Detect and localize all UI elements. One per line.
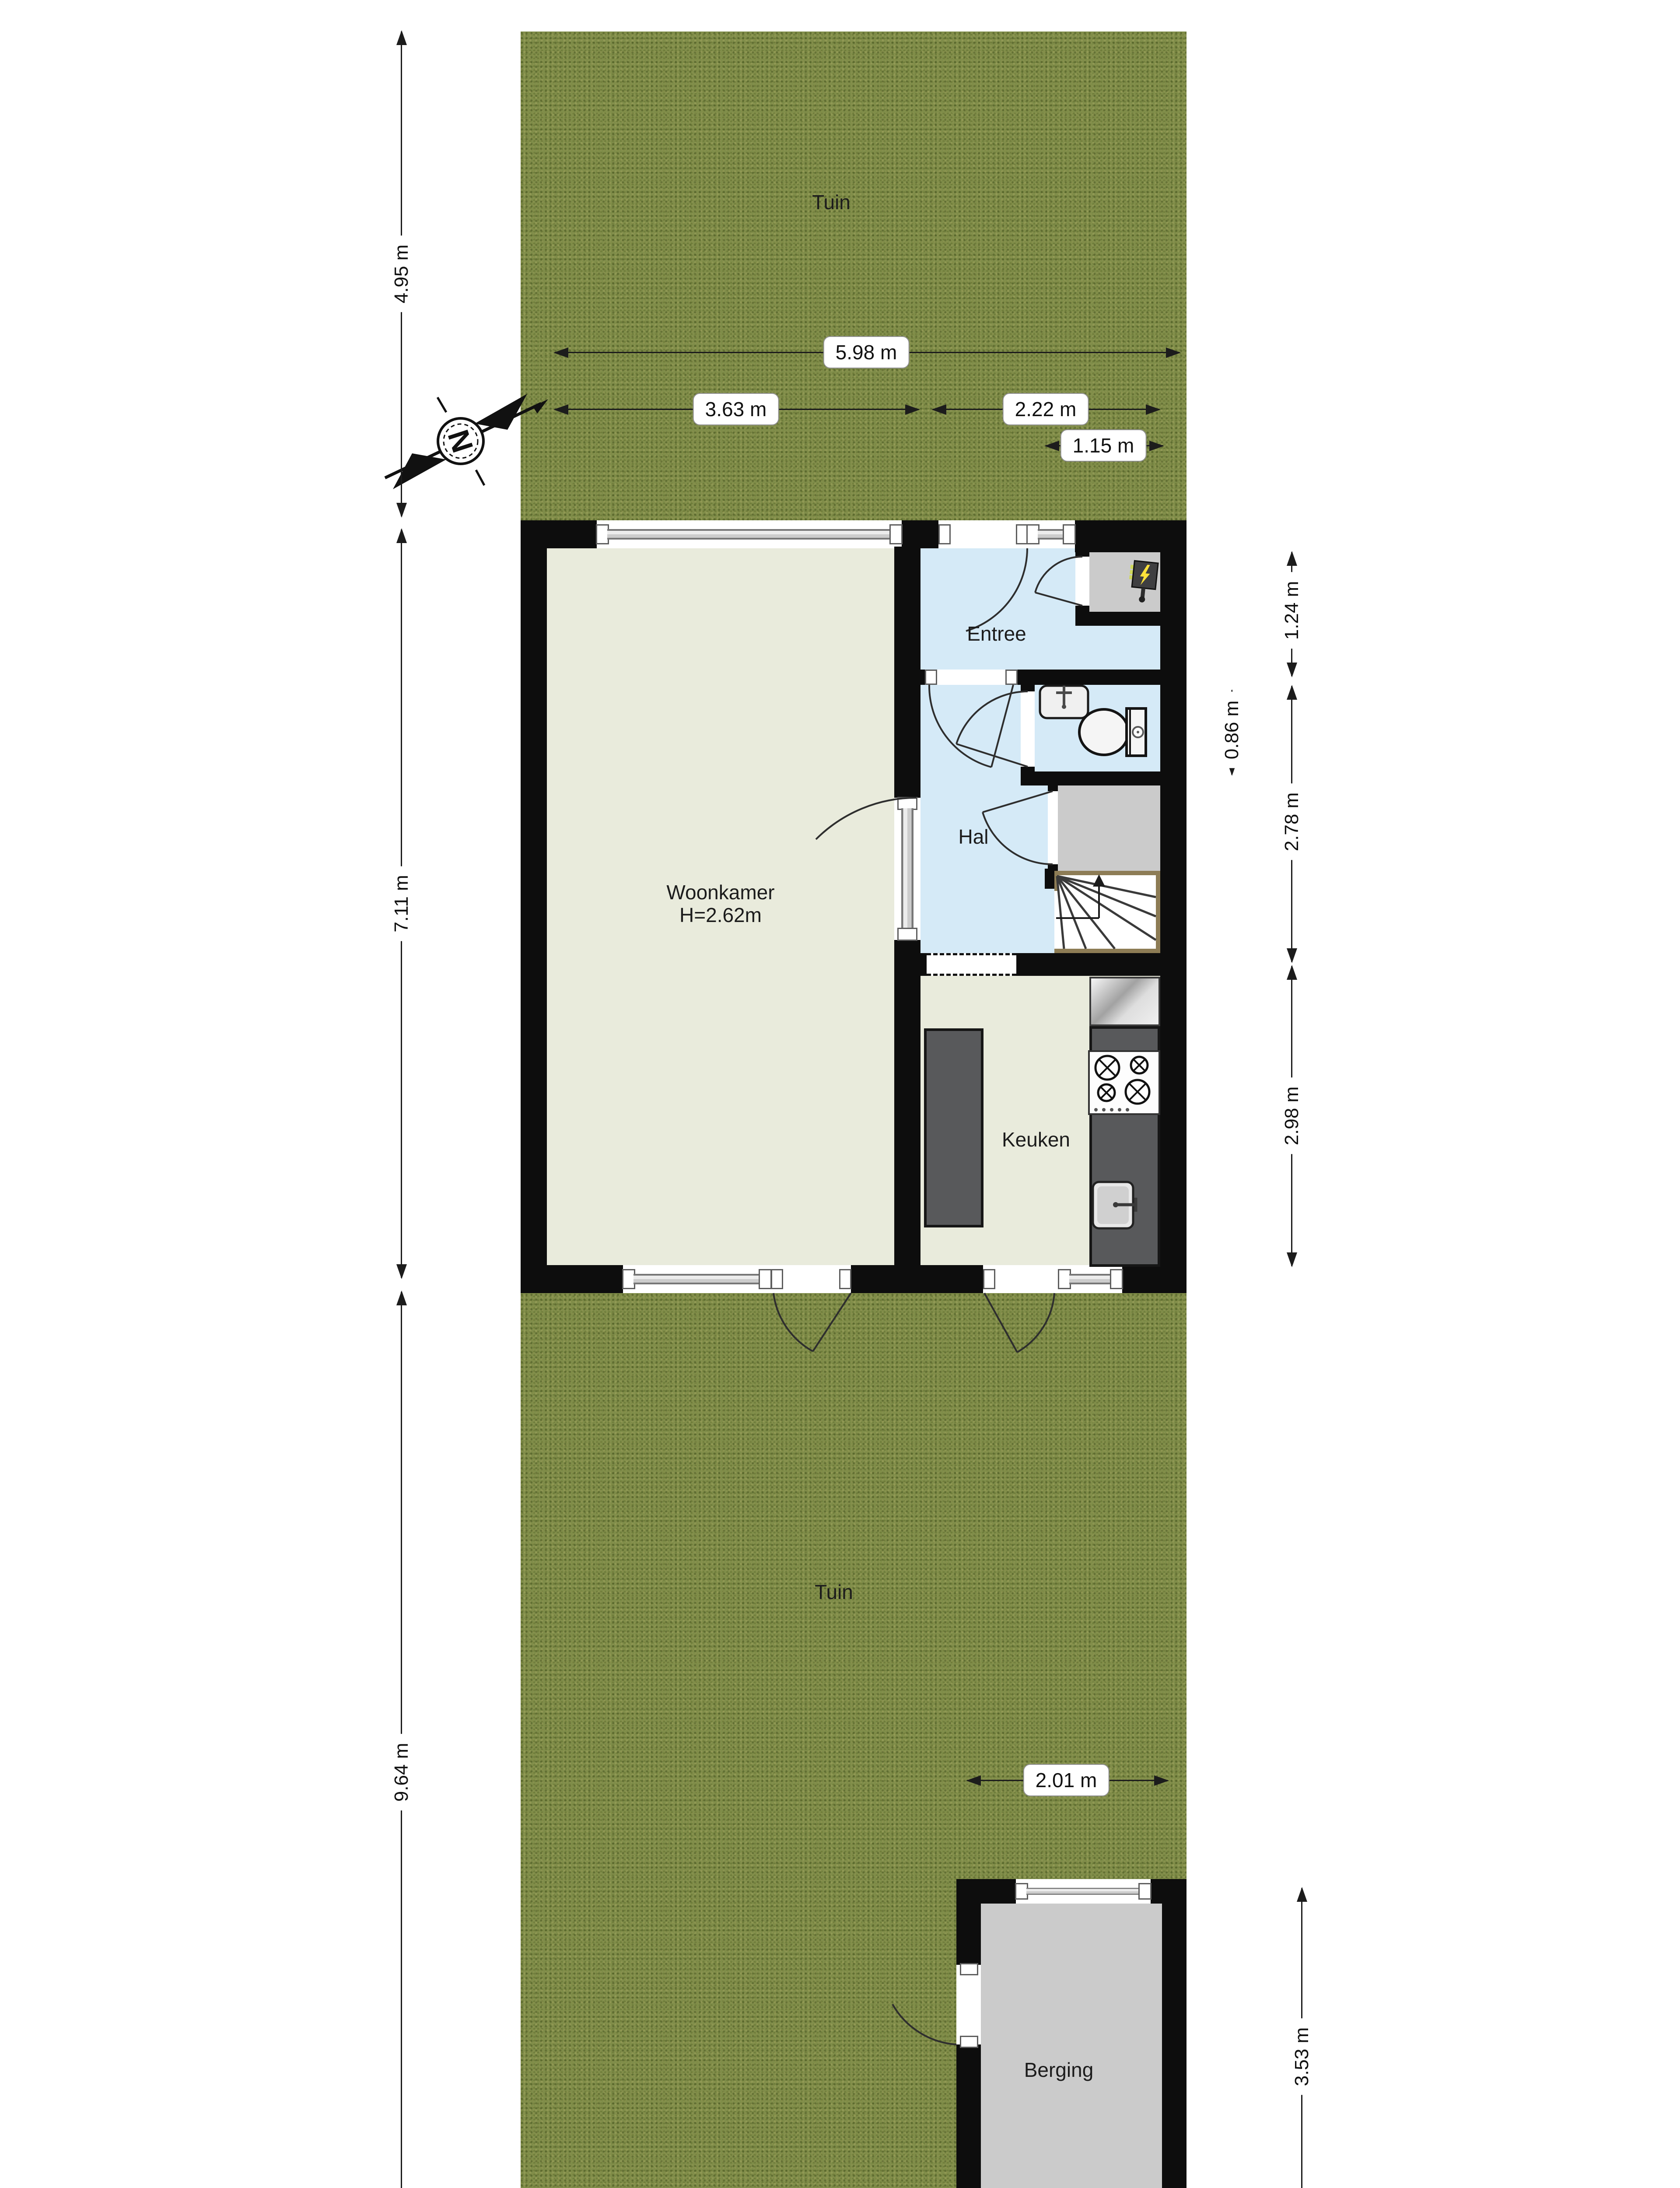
stairs-icon <box>1054 871 1160 953</box>
compass-icon: N <box>376 368 551 499</box>
room-label-woonkamer-name: Woonkamer <box>666 881 774 904</box>
living-room-rear-window <box>623 1265 771 1293</box>
window-glazing <box>633 1274 760 1284</box>
window-glazing <box>1038 529 1064 540</box>
window-glazing <box>1069 1274 1112 1284</box>
dim-label-2-78: 2.78 m <box>1281 784 1303 860</box>
room-label-tuin-top: Tuin <box>812 191 850 214</box>
dim-label-1-24: 1.24 m <box>1281 572 1303 649</box>
window-glazing <box>607 529 891 540</box>
dim-label-0-86: 0.86 m <box>1221 692 1243 768</box>
dim-label-3-63: 3.63 m <box>693 393 779 425</box>
shed-window <box>1016 1879 1151 1904</box>
room-label-berging: Berging <box>1024 2058 1094 2081</box>
closet-floor <box>1058 785 1160 871</box>
dim-label-2-01: 2.01 m <box>1023 1764 1109 1796</box>
electric-meter-icon <box>1129 555 1160 604</box>
living-room-door-arc <box>783 796 923 945</box>
hall-kitchen-passage <box>927 953 1016 976</box>
dim-label-3-53: 3.53 m <box>1291 2019 1313 2095</box>
shed-floor <box>981 1904 1162 2188</box>
room-label-tuin-bottom: Tuin <box>815 1581 853 1603</box>
wall-left <box>521 520 547 1293</box>
toilet-room-fixtures <box>1035 685 1160 771</box>
dim-label-9-64: 9.64 m <box>391 1734 413 1811</box>
room-label-hal: Hal <box>958 825 988 848</box>
shed-door-arc <box>892 1960 967 2048</box>
room-label-entree: Entree <box>967 622 1026 645</box>
kitchen-island <box>924 1028 983 1227</box>
door-frame <box>839 1269 851 1289</box>
room-label-keuken: Keuken <box>1002 1128 1070 1151</box>
kitchen-sink-icon <box>1090 1179 1143 1232</box>
wall-toilet-bottom <box>1021 771 1160 785</box>
sink-icon <box>1040 686 1088 718</box>
living-room-front-window <box>597 520 902 548</box>
meter-cupboard-door-arc <box>1024 551 1089 613</box>
dim-label-7-11: 7.11 m <box>391 866 413 941</box>
wall-top-3 <box>1075 520 1186 552</box>
dim-label-5-98: 5.98 m <box>823 336 910 368</box>
wall-right <box>1160 520 1186 1293</box>
wall-bottom-2 <box>851 1265 983 1293</box>
wall-bottom-3 <box>1122 1265 1186 1293</box>
living-room-garden-door-arc <box>766 1291 857 1361</box>
front-door-opening <box>938 520 1027 548</box>
toilet-icon <box>1079 708 1146 756</box>
kitchen-garden-door-arc <box>980 1291 1063 1361</box>
wall-top-1 <box>547 520 597 548</box>
room-label-woonkamer: Woonkamer H=2.62m <box>666 881 774 926</box>
window-glazing <box>1026 1888 1140 1895</box>
room-label-woonkamer-height: H=2.62m <box>666 904 774 926</box>
meter-cupboard-wall-bottom <box>1075 612 1186 626</box>
toilet-door-arc <box>941 687 1032 770</box>
door-frame <box>771 1269 783 1289</box>
wall-living-divider-lower <box>894 940 920 1267</box>
door-frame <box>983 1269 995 1289</box>
wall-top-2 <box>902 520 938 548</box>
stove-icon <box>1088 1050 1160 1115</box>
wall-bottom-1 <box>547 1265 623 1293</box>
door-frame <box>938 524 951 544</box>
kitchen-appliance <box>1089 977 1160 1026</box>
dim-label-2-98: 2.98 m <box>1281 1078 1303 1154</box>
dim-label-2-22: 2.22 m <box>1003 393 1089 425</box>
kitchen-rear-window <box>1059 1265 1122 1293</box>
floorplan-page: Tuin Woonkamer H=2.62m Entree Hal Keuken… <box>0 0 1680 2188</box>
dim-label-1-15: 1.15 m <box>1060 429 1147 462</box>
entry-sidelight-window <box>1027 520 1075 548</box>
dim-label-4-95: 4.95 m <box>391 236 413 312</box>
stairs-stub-wall <box>1045 869 1055 889</box>
